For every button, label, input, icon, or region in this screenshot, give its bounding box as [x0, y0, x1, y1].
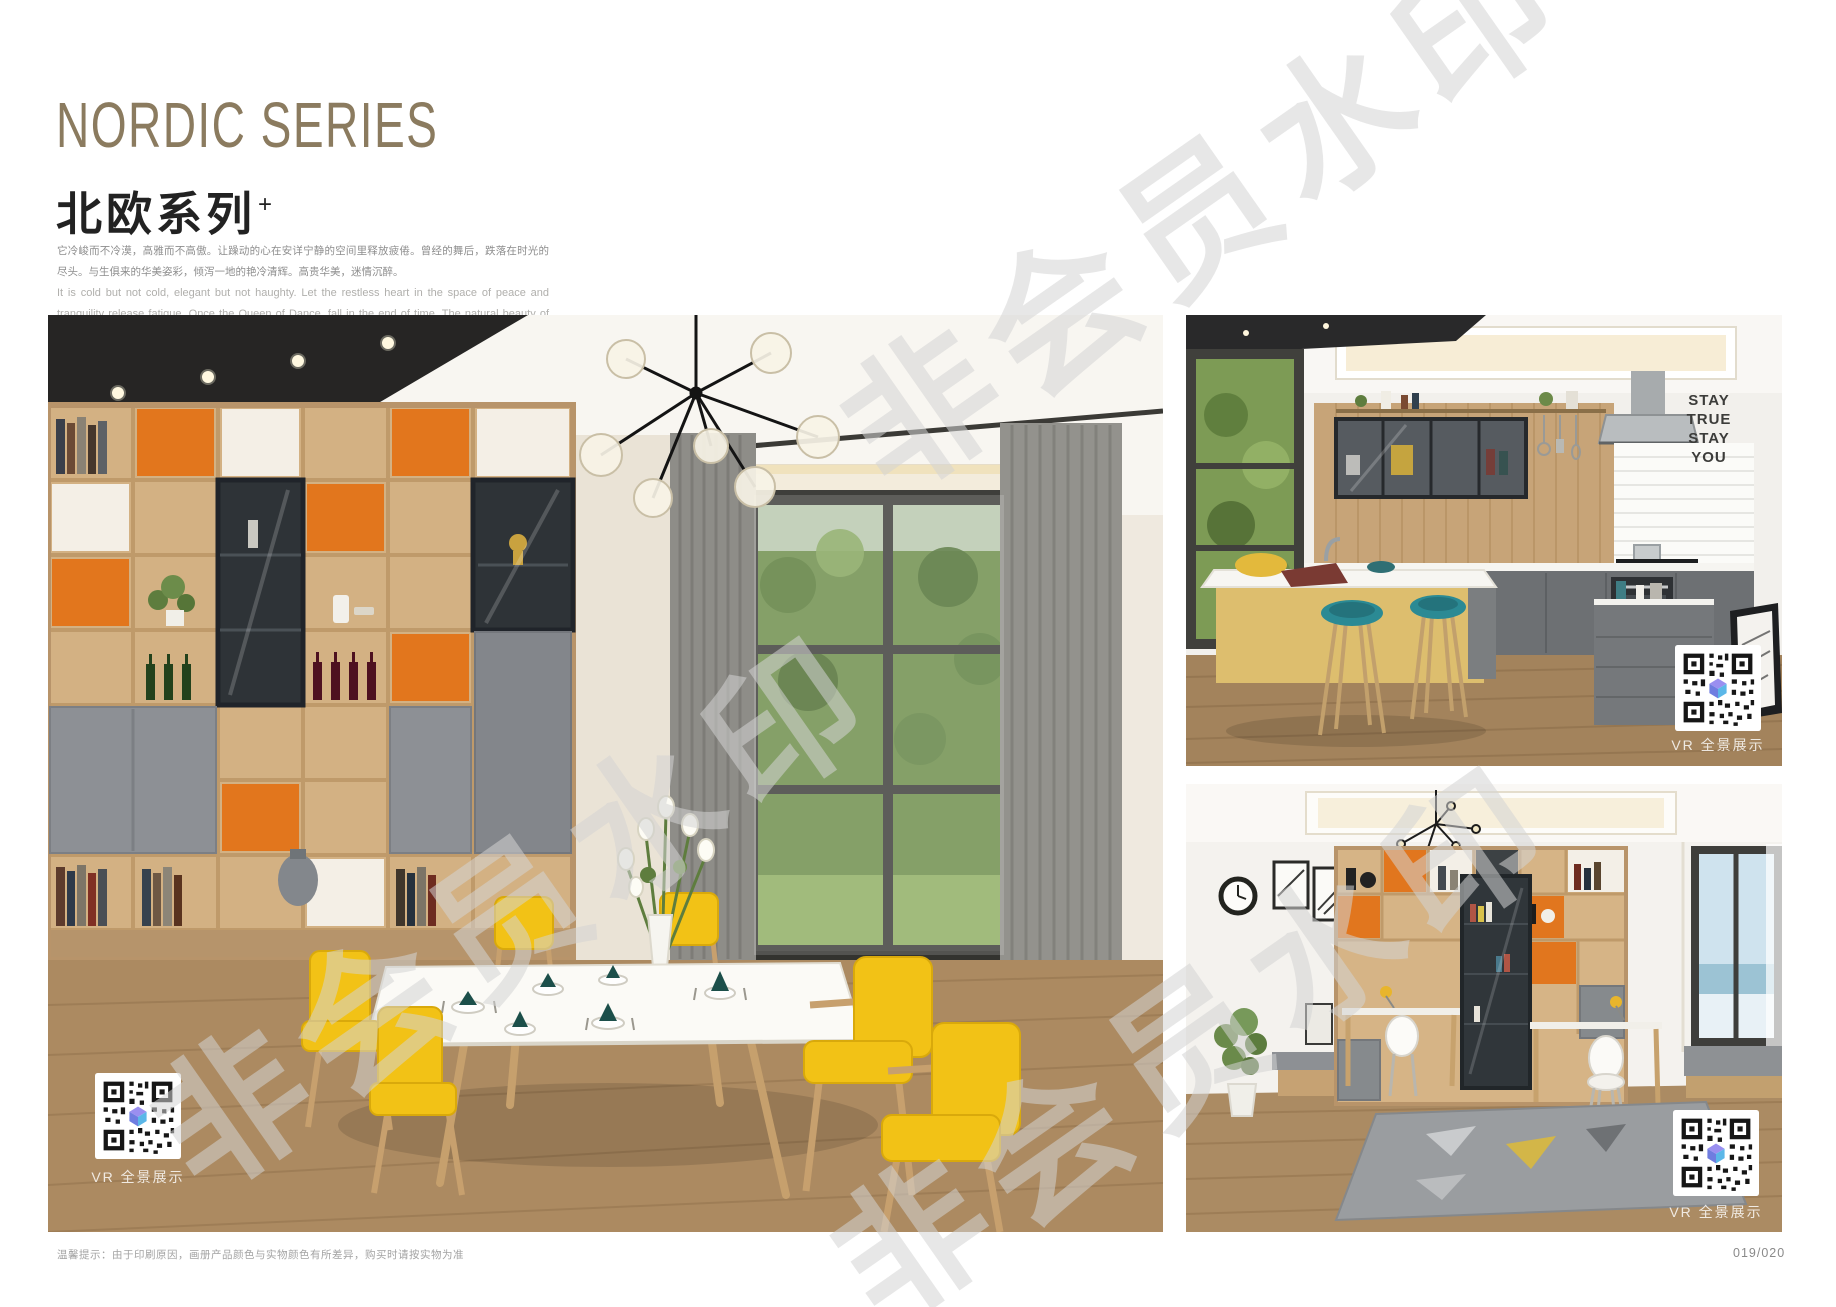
wall-art-quote: STAY TRUE STAY YOU: [1665, 391, 1753, 467]
wall-art-line: STAY: [1665, 429, 1753, 448]
curtains: [670, 423, 1122, 963]
wall-clock: [1221, 879, 1255, 913]
vr-qr-code: [1673, 1110, 1759, 1196]
subtitle-text: 北欧系列: [56, 188, 256, 240]
kitchen-photo: STAY TRUE STAY YOU VR 全景展示: [1186, 315, 1782, 766]
wall-art-line: TRUE: [1665, 410, 1753, 429]
page-title: NORDIC SERIES: [56, 88, 438, 162]
catalog-page: NORDIC SERIES 北欧系列+ 它冷峻而不冷漠，高雅而不高傲。让躁动的心…: [0, 0, 1836, 1307]
vr-panorama-label: VR 全景展示: [1646, 735, 1782, 755]
vr-qr-code: [95, 1073, 181, 1159]
subtitle-superscript: +: [258, 191, 276, 218]
page-subtitle: 北欧系列+: [56, 178, 276, 244]
vr-panorama-label: VR 全景展示: [66, 1167, 210, 1187]
intro-paragraph-cn: 它冷峻而不冷漠，高雅而不高傲。让躁动的心在安详宁静的空间里释放疲倦。曾经的舞后，…: [57, 241, 549, 283]
vr-panorama-label: VR 全景展示: [1644, 1202, 1782, 1222]
wall-art-line: STAY: [1665, 391, 1753, 410]
page-number: 019/020: [1733, 1246, 1785, 1260]
study-shelving-unit: [1336, 848, 1662, 1136]
footer-disclaimer: 温馨提示：由于印刷原因，画册产品颜色与实物颜色有所差异，购买时请按实物为准: [57, 1247, 464, 1262]
study-window: [1683, 842, 1782, 1098]
wall-art-line: YOU: [1665, 448, 1753, 467]
dining-room-illustration: [48, 315, 1163, 1232]
vr-qr-code: [1675, 645, 1761, 731]
dining-room-photo: VR 全景展示: [48, 315, 1163, 1232]
study-photo: VR 全景展示: [1186, 784, 1782, 1232]
upper-glass-cabinets: [1336, 419, 1526, 497]
